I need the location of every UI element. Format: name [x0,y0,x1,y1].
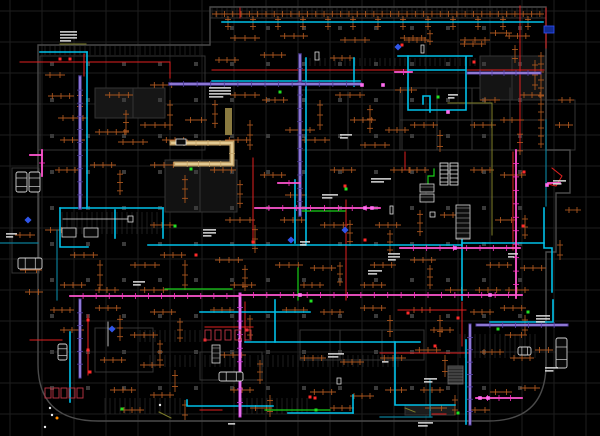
panel-louver [212,345,220,363]
car-symbol [219,372,243,381]
micro-text-label [448,97,455,99]
junction-node-icon [381,83,385,87]
alarm-device-icon [314,397,317,400]
truck-symbol [18,258,42,269]
ahu-unit [450,163,458,185]
alarm-device-icon [195,254,198,257]
valve-icon [174,225,177,228]
micro-text-label [418,422,433,424]
junction-node-icon [363,206,367,210]
micro-text-label [322,194,338,196]
valve-icon [437,96,440,99]
junction-node-icon [545,183,549,187]
car-symbol [556,338,567,368]
micro-text-label [536,315,550,317]
alarm-device-icon [344,185,347,188]
alarm-device-icon [407,312,410,315]
car-symbol [518,347,531,355]
alarm-device-icon [252,241,255,244]
junction-node-icon [488,293,492,297]
alarm-device-icon [89,371,92,374]
micro-text-label [388,259,396,261]
micro-text-label [209,87,231,89]
alarm-device-icon [364,239,367,242]
micro-text-label [328,356,338,358]
micro-text-label [209,90,231,92]
micro-text-label [133,284,141,286]
panel-louver [420,184,434,192]
micro-text-label [60,31,77,33]
alarm-device-icon [523,171,526,174]
micro-text-label [133,281,145,283]
micro-text-label [553,180,566,182]
micro-text-label [545,370,553,372]
alarm-device-icon [87,349,90,352]
micro-text-label [545,367,558,369]
micro-text-label [388,253,400,255]
ahu-unit [440,163,448,185]
valve-icon [527,311,530,314]
micro-text-label [60,40,71,42]
valve-icon [457,412,460,415]
alarm-device-icon [457,317,460,320]
micro-text-label [418,425,428,427]
micro-text-label [448,94,458,96]
micro-text-label [203,232,216,234]
junction-node-icon [298,293,302,297]
stair-block [448,366,463,384]
micro-text-label [371,181,384,183]
micro-text-label [228,423,235,425]
micro-text-label [508,256,515,258]
micro-text-label [536,318,550,320]
micro-text-label [340,137,348,139]
alarm-device-icon [59,58,62,61]
micro-text-label [300,244,307,246]
micro-text-label [388,256,400,258]
alarm-device-icon [522,225,525,228]
alarm-device-icon [473,61,476,64]
micro-text-label [382,361,389,363]
micro-text-label [328,353,344,355]
alarm-device-icon [434,345,437,348]
micro-text-label [209,96,223,98]
micro-text-label [424,381,432,383]
micro-text-label [60,34,77,36]
valve-icon [310,300,313,303]
alarm-device-icon [309,396,312,399]
alarm-device-icon [87,319,90,322]
truck-symbol [16,172,27,192]
car-symbol [58,344,67,360]
valve-icon [190,168,193,171]
micro-text-label [553,183,561,185]
micro-text-label [203,229,216,231]
panel-louver [420,194,434,202]
junction-node-icon [486,396,490,400]
valve-icon [121,408,124,411]
junction-node-icon [478,396,482,400]
junction-node-icon [453,246,457,250]
micro-text-label [368,273,377,275]
junction-node-icon [360,83,364,87]
micro-text-label [340,134,352,136]
duct-tan-risers [225,108,232,135]
panel-louver [456,205,470,239]
micro-text-label [508,253,518,255]
truck-symbol [29,172,40,192]
micro-text-label [371,178,391,180]
alarm-device-icon [69,58,72,61]
micro-text-label [536,321,545,323]
micro-text-label [6,236,13,238]
junction-node-icon [446,110,450,114]
cad-drawing [0,0,600,436]
micro-text-label [60,37,77,39]
micro-text-label [322,197,332,199]
micro-text-label [209,93,231,95]
junction-node-icon [370,206,374,210]
micro-text-label [300,241,310,243]
valve-icon [497,328,500,331]
valve-icon [315,409,318,412]
micro-text-label [368,270,382,272]
micro-text-label [424,378,437,380]
micro-text-label [203,235,211,237]
valve-icon [279,91,282,94]
valve-icon [345,188,348,191]
alarm-device-icon [401,44,404,47]
cad-viewport [0,0,600,436]
micro-text-label [6,233,17,235]
